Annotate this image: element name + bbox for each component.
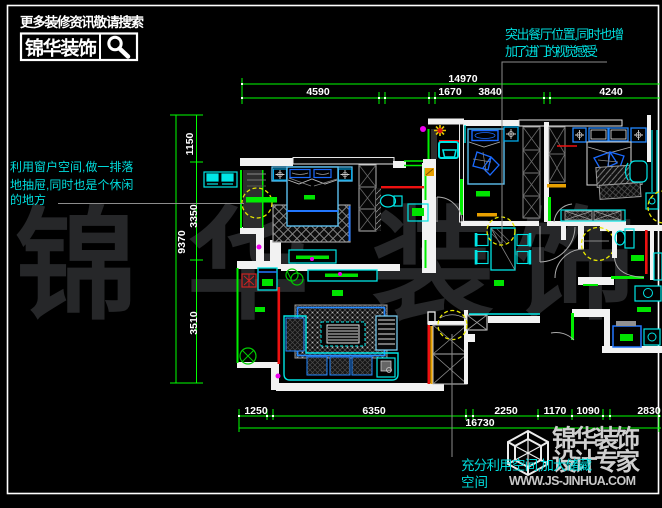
svg-text:的地方: 的地方: [10, 192, 46, 207]
svg-text:WWW.JS-JINHUA.COM: WWW.JS-JINHUA.COM: [509, 474, 636, 488]
svg-text:16730: 16730: [465, 417, 494, 429]
svg-text:1090: 1090: [576, 405, 600, 417]
svg-text:6350: 6350: [362, 405, 386, 417]
svg-text:3510: 3510: [188, 311, 200, 335]
svg-text:充分利用空间,加大储藏: 充分利用空间,加大储藏: [461, 458, 593, 473]
svg-text:2830: 2830: [637, 405, 661, 417]
svg-text:1170: 1170: [544, 405, 567, 417]
svg-text:3840: 3840: [478, 86, 502, 98]
svg-text:更多装修资讯敬请搜索: 更多装修资讯敬请搜索: [20, 14, 145, 30]
svg-text:1250: 1250: [244, 405, 268, 417]
svg-text:锦: 锦: [15, 198, 137, 334]
svg-text:锦华装饰: 锦华装饰: [25, 37, 97, 60]
svg-text:加了进门的视觉感受: 加了进门的视觉感受: [505, 44, 598, 59]
svg-text:4590: 4590: [306, 86, 330, 98]
svg-text:9370: 9370: [176, 230, 188, 254]
svg-text:空间: 空间: [461, 475, 488, 490]
svg-text:14970: 14970: [448, 73, 477, 85]
svg-text:1150: 1150: [184, 132, 196, 155]
svg-text:突出餐厅位置,同时也增: 突出餐厅位置,同时也增: [505, 27, 624, 42]
svg-text:利用窗户空间,做一排落: 利用窗户空间,做一排落: [10, 159, 133, 174]
svg-text:地抽屉,同时也是个休闲: 地抽屉,同时也是个休闲: [10, 178, 133, 192]
svg-text:2250: 2250: [494, 405, 518, 417]
svg-text:4240: 4240: [599, 86, 623, 98]
svg-text:1670: 1670: [438, 86, 462, 98]
svg-text:3350: 3350: [188, 204, 200, 228]
